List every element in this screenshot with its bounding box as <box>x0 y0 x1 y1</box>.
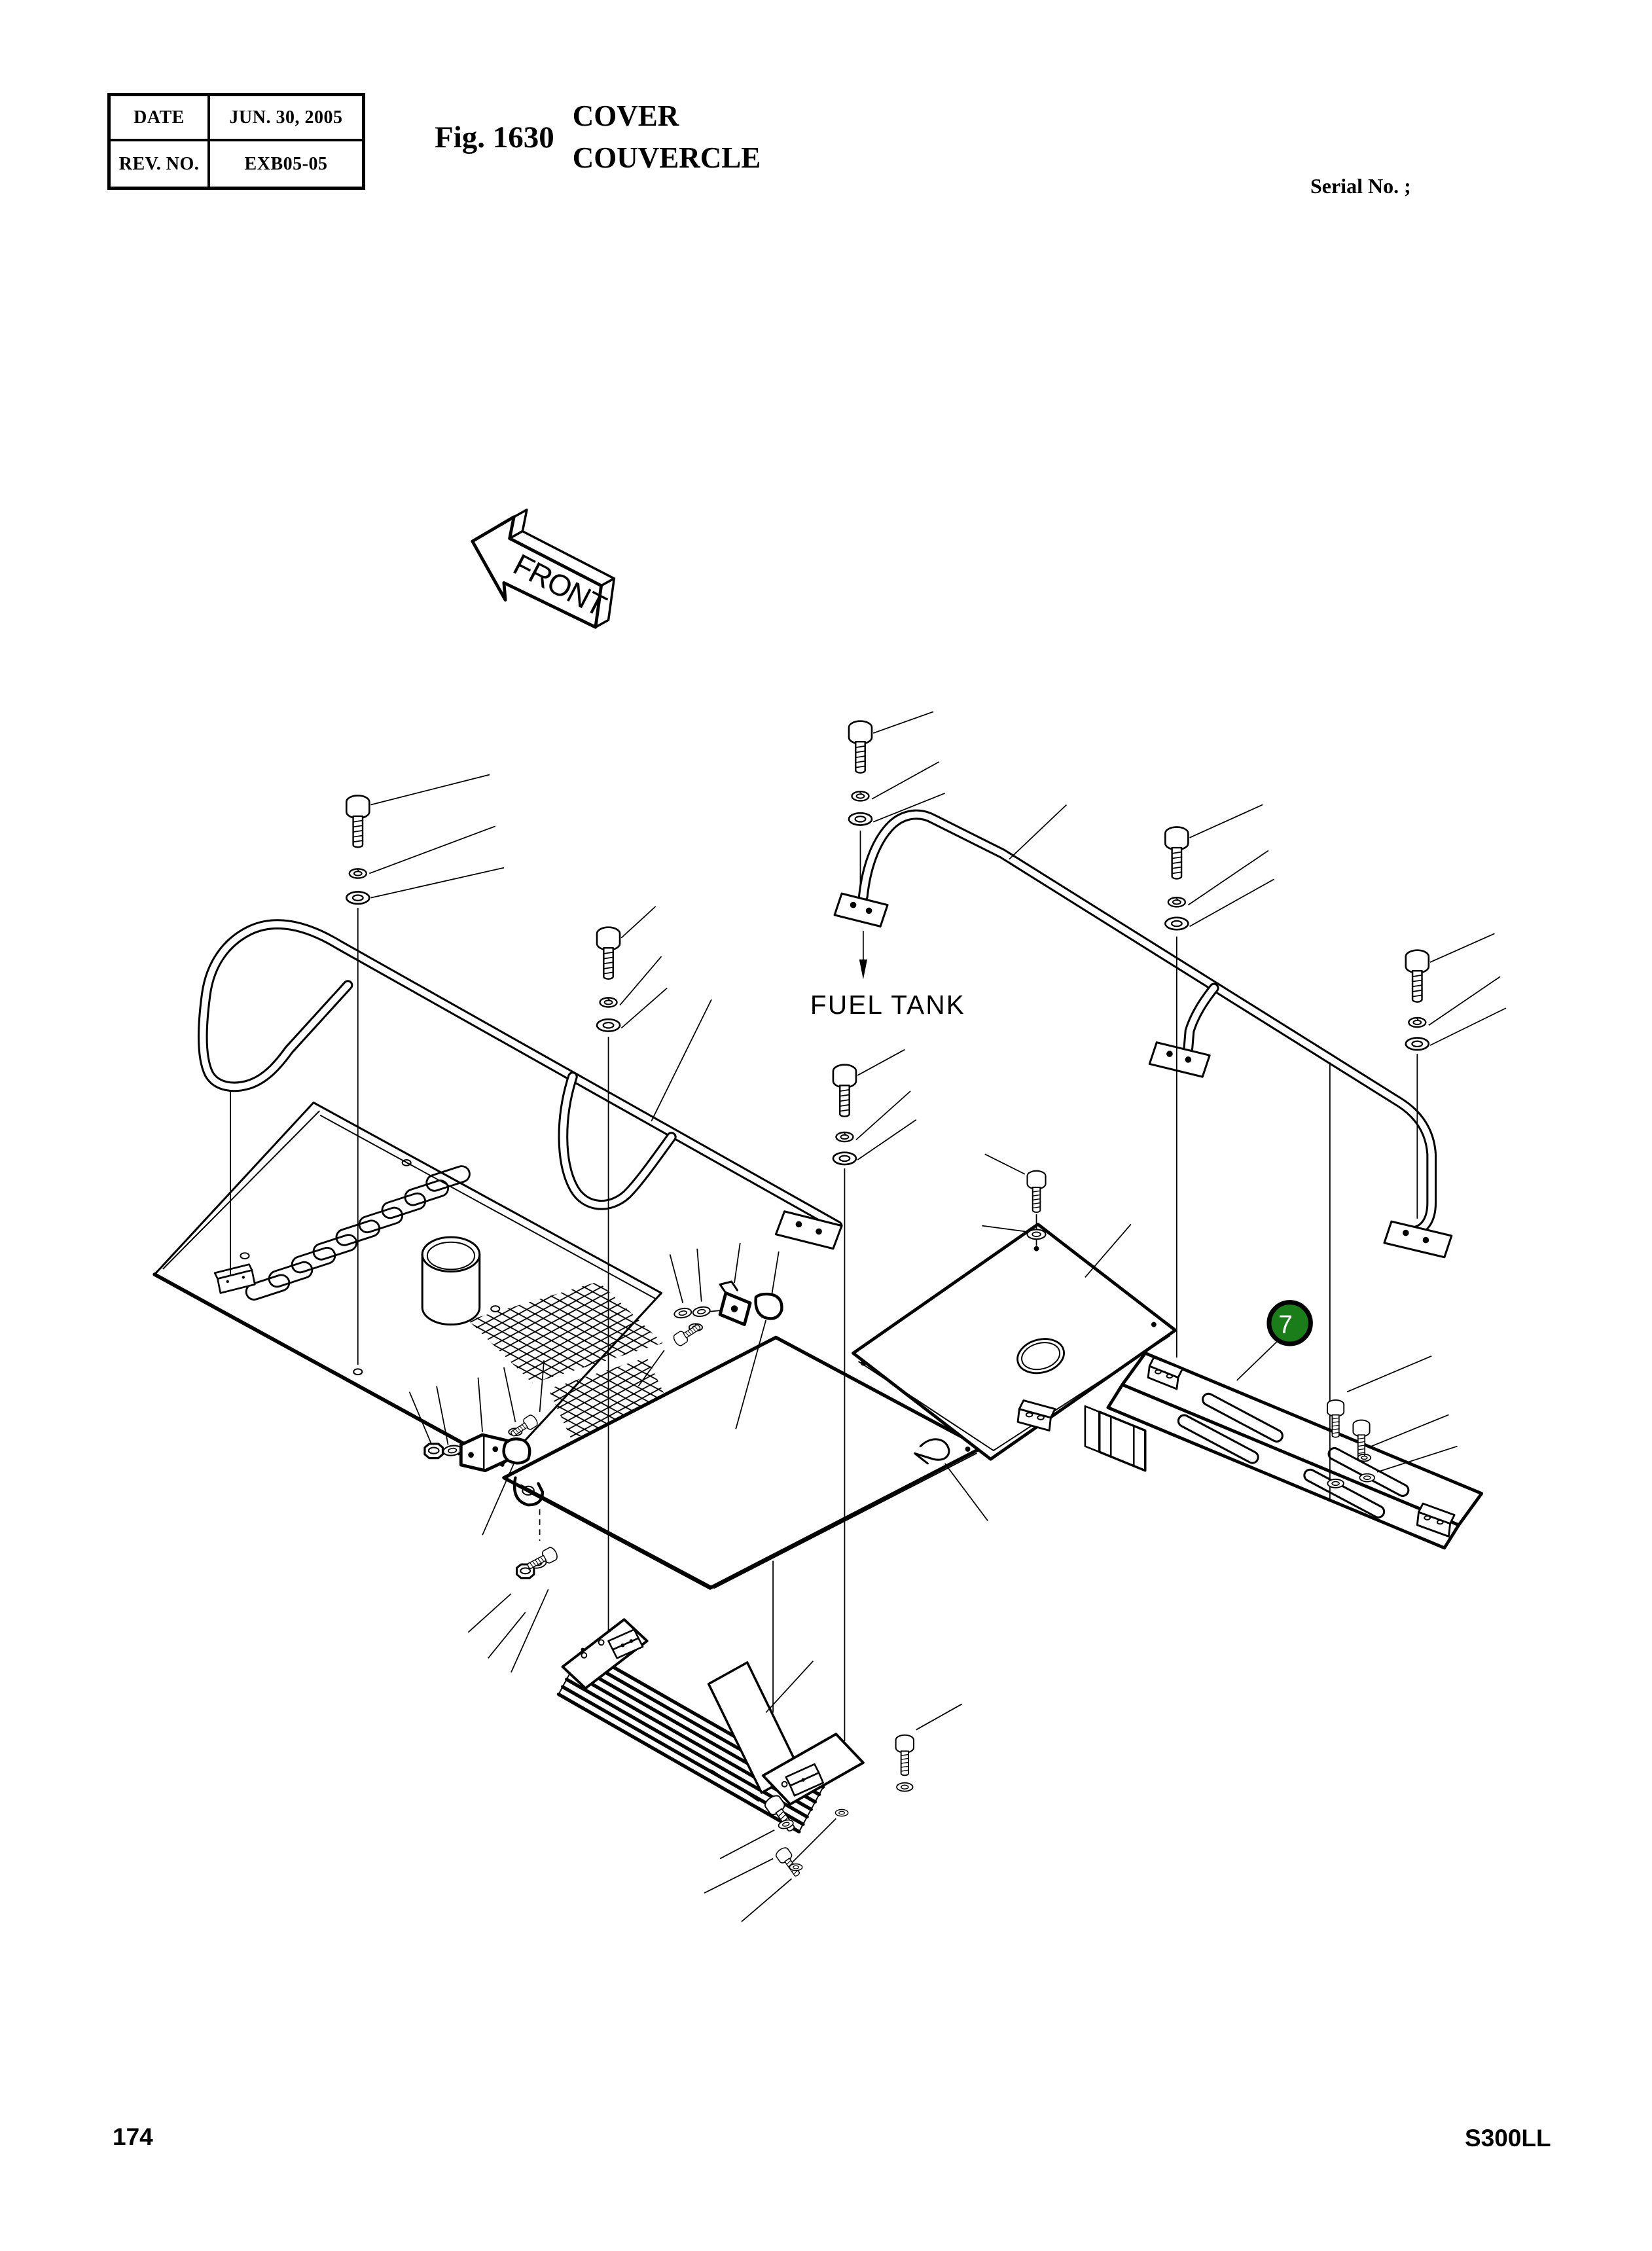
hex-bolt <box>597 927 620 979</box>
bolt-group <box>597 927 620 1032</box>
fuel-tank-callout: FUEL TANK <box>810 931 965 1020</box>
bolt-group <box>1165 827 1188 930</box>
flat-washer <box>833 1153 856 1164</box>
spring-washer <box>836 1132 853 1142</box>
bolt-group <box>346 795 369 903</box>
parts-manual-page: DATE JUN. 30, 2005 REV. NO. EXB05-05 Fig… <box>0 0 1652 2251</box>
hex-bolt <box>849 721 872 773</box>
rubber-cap <box>504 1439 530 1463</box>
right-handrail <box>863 815 1431 1232</box>
bolt-group <box>833 1065 856 1164</box>
bottom-grille <box>558 1619 863 1831</box>
spring-washer <box>1409 1018 1426 1027</box>
flat-washer <box>1028 1229 1046 1239</box>
flat-washer <box>346 891 369 903</box>
door-lower-hardware <box>517 1546 559 1578</box>
hex-bolt <box>525 1546 559 1573</box>
flat-washer <box>1359 1474 1374 1482</box>
page-number: 174 <box>113 2123 153 2151</box>
flat-washer <box>849 813 872 825</box>
spring-washer <box>600 998 617 1007</box>
flat-washer <box>597 1019 620 1031</box>
hex-bolt <box>346 795 369 847</box>
spring-washer <box>1358 1454 1371 1462</box>
hex-bolt <box>833 1065 856 1117</box>
flat-washer <box>1406 1038 1429 1050</box>
door-top-hardware <box>672 1282 782 1347</box>
hex-bolt <box>1406 950 1429 1002</box>
spring-washer <box>1168 897 1185 907</box>
arrow-down-icon <box>859 960 867 980</box>
hex-bolt <box>896 1735 914 1776</box>
bolt-group <box>849 721 872 825</box>
hex-nut <box>425 1444 443 1458</box>
rubber-cap <box>756 1294 782 1318</box>
hex-bolt <box>774 1846 803 1879</box>
hex-bolt <box>1028 1171 1046 1212</box>
flat-washer <box>897 1783 912 1792</box>
flat-washer <box>673 1307 692 1319</box>
filler-cylinder <box>422 1237 479 1324</box>
hex-bolt <box>1165 827 1188 879</box>
model-code: S300LL <box>1465 2125 1551 2152</box>
front-arrow: FRONT <box>473 510 615 627</box>
exploded-view-diagram: FRONT FUEL TANK 7 <box>0 0 1652 2251</box>
flat-washer <box>789 1864 802 1871</box>
spring-washer <box>852 791 869 801</box>
bolt-group <box>1406 950 1429 1050</box>
vent-panel <box>154 1102 670 1464</box>
flat-washer <box>692 1306 711 1318</box>
step-bracket-part7 <box>1085 1353 1482 1548</box>
callout-7-number: 7 <box>1278 1310 1293 1339</box>
flat-washer <box>835 1810 848 1816</box>
spring-washer <box>350 869 367 878</box>
machine-screw <box>672 1321 703 1347</box>
flat-washer <box>1165 918 1188 929</box>
fuel-tank-label: FUEL TANK <box>810 990 965 1020</box>
flat-washer <box>1327 1479 1343 1488</box>
callout-7: 7 <box>1237 1303 1311 1380</box>
